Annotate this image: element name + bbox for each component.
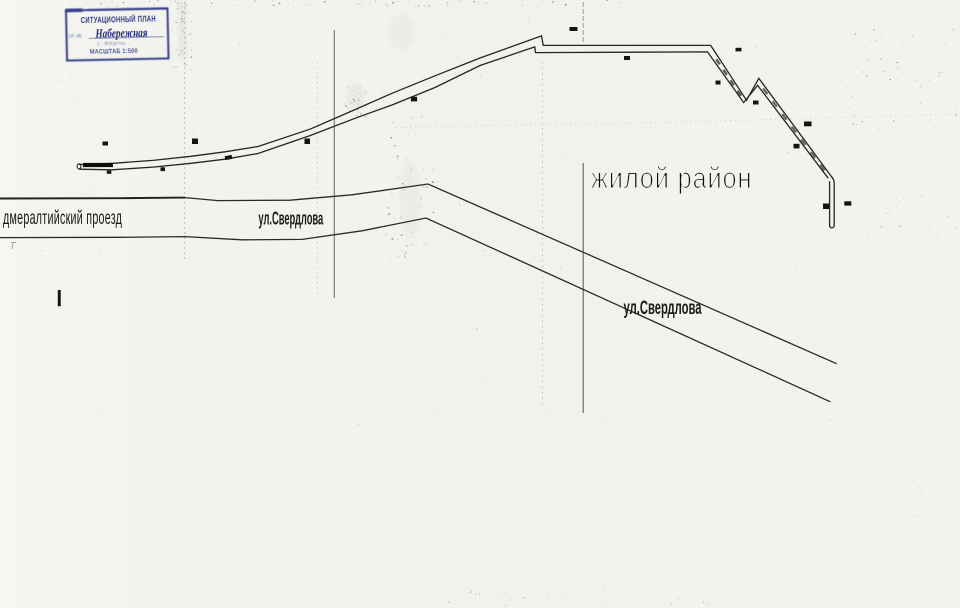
svg-text:СИТУАЦИОННЫЙ ПЛАН: СИТУАЦИОННЫЙ ПЛАН [81,13,156,25]
svg-text:Набережная: Набережная [95,26,148,41]
svg-text:ул. кв.: ул. кв. [68,33,82,40]
svg-text:жилой район: жилой район [591,161,752,194]
svg-text:дмералтийский проезд: дмералтийский проезд [3,208,122,229]
svg-text:г. Керчь .: г. Керчь . [97,41,131,47]
svg-text:МАСШТАБ 1:500: МАСШТАБ 1:500 [90,47,138,56]
svg-text:ул.Свердлова: ул.Свердлова [624,298,702,319]
svg-text:ул.Свердлова: ул.Свердлова [258,209,323,229]
